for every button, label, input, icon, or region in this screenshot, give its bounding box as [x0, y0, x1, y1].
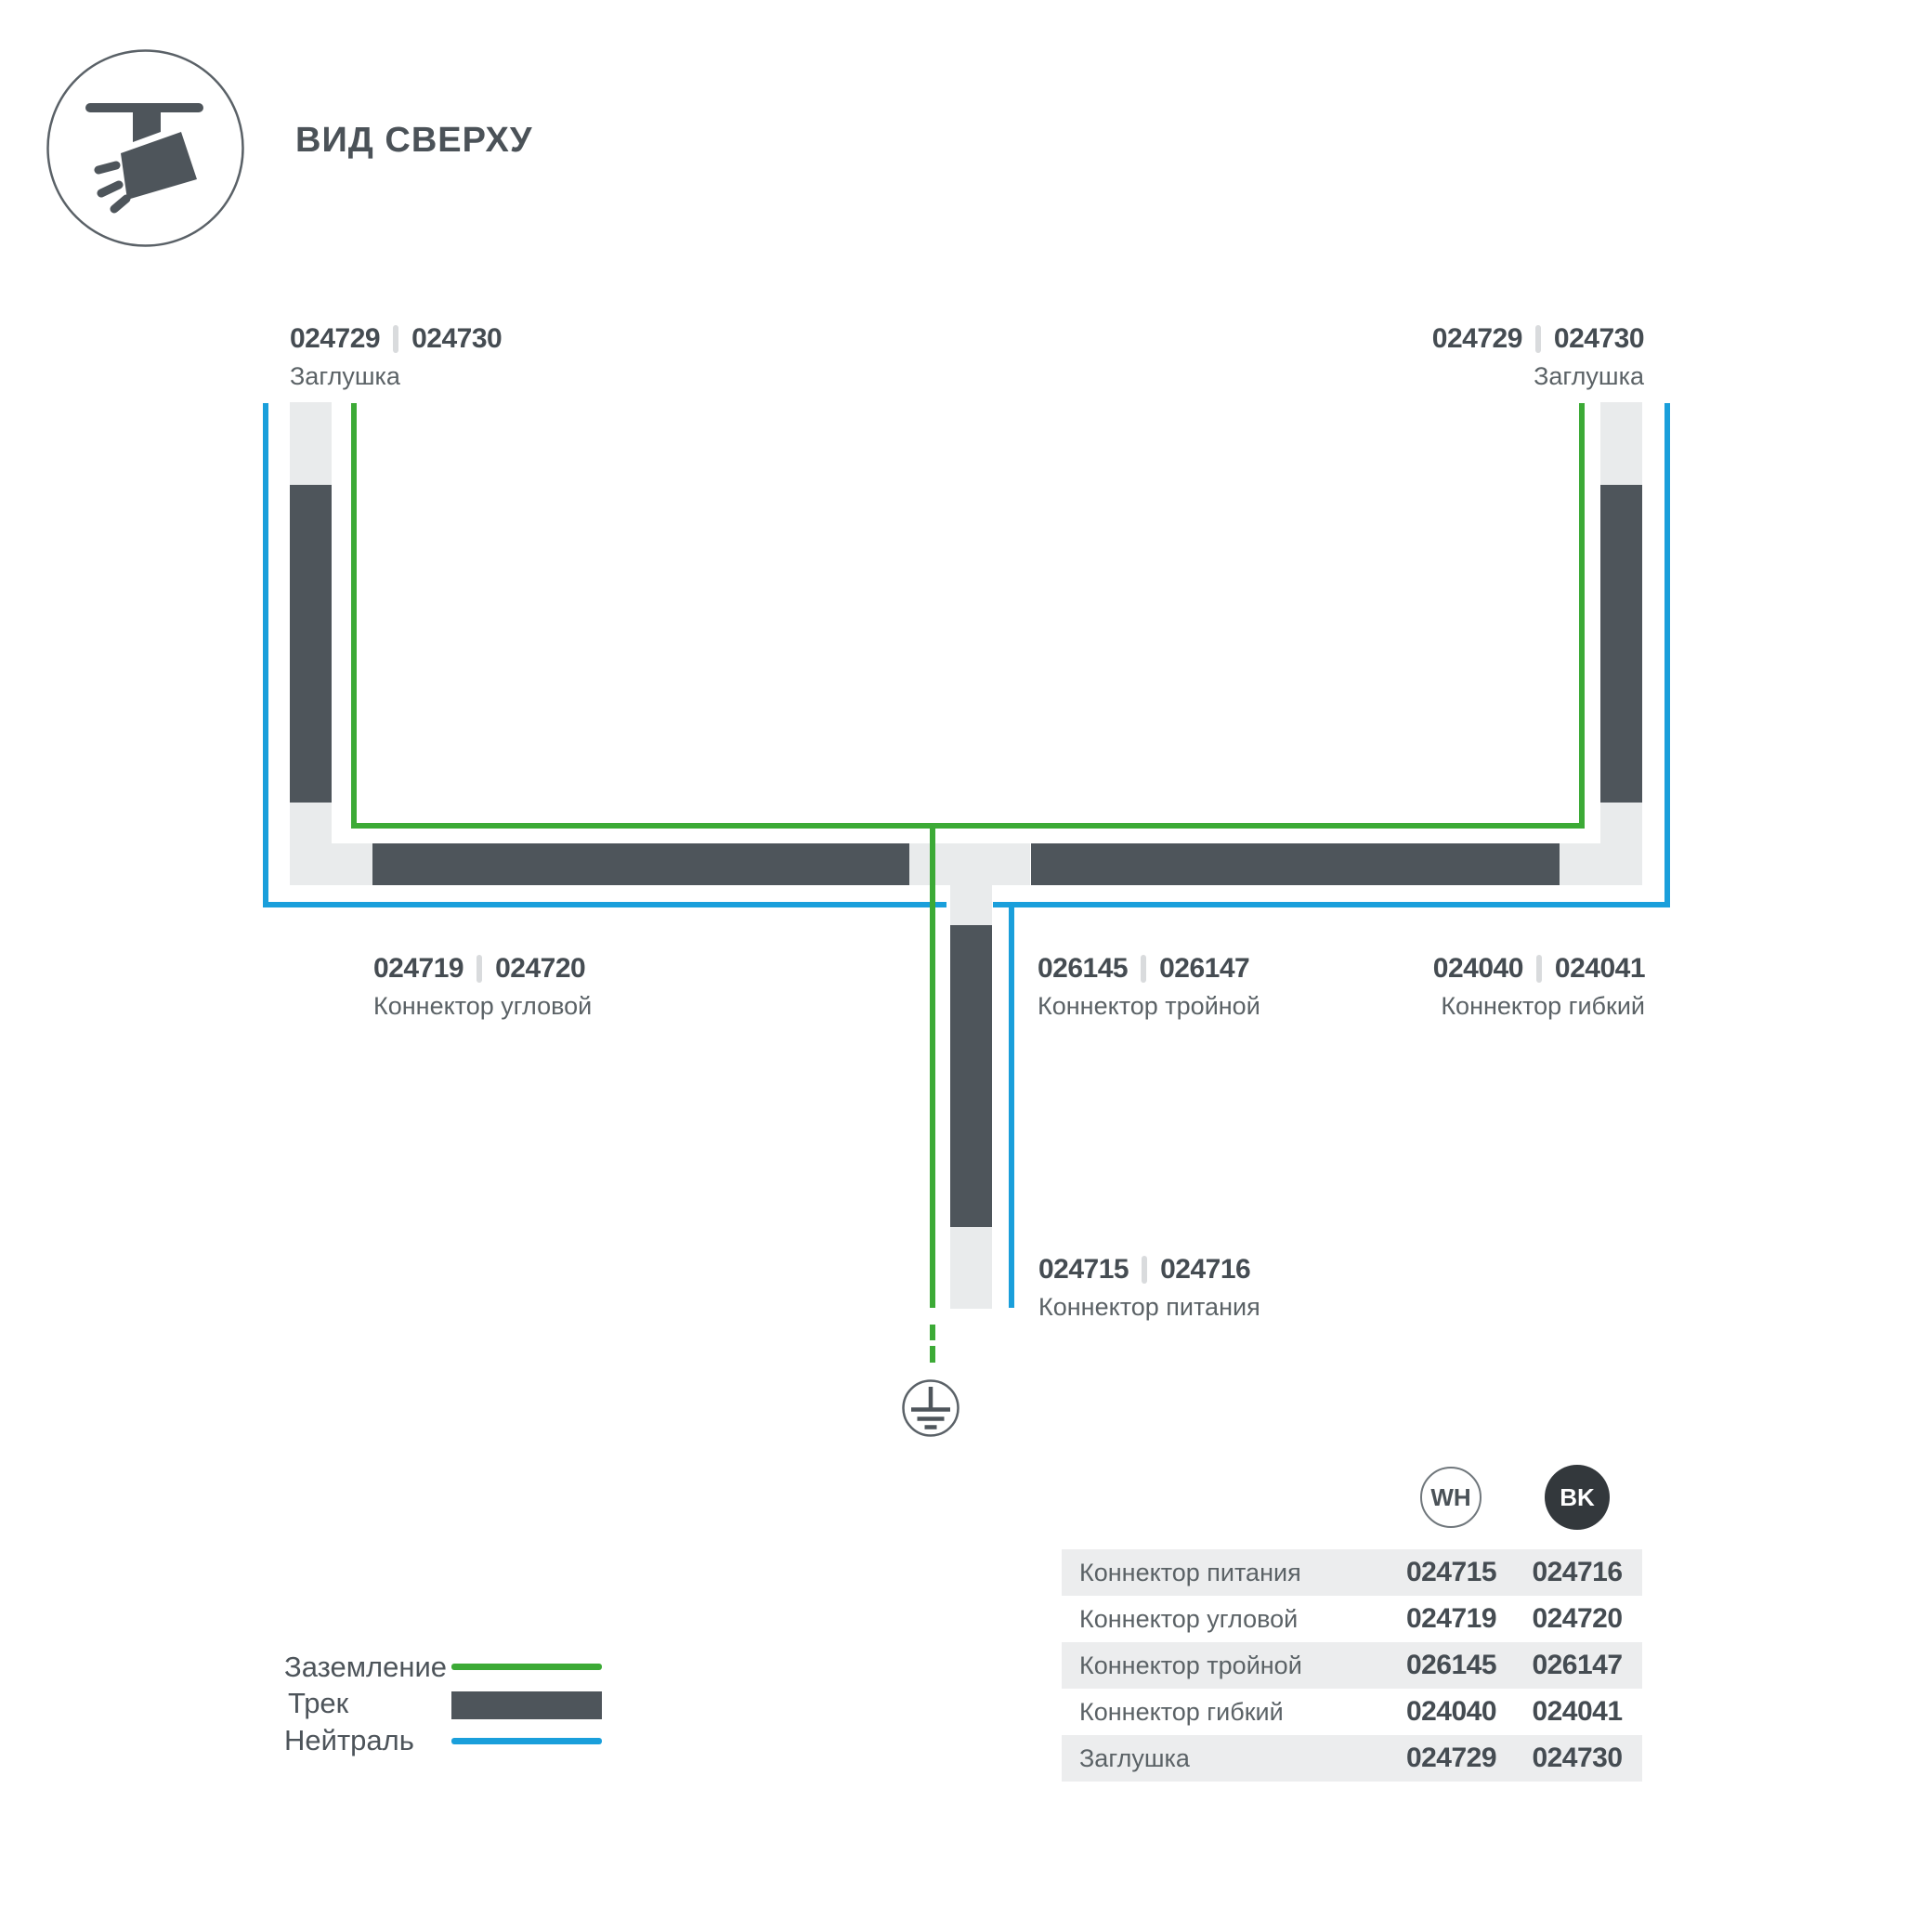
- track-spotlight-icon: [46, 48, 245, 248]
- table-row: Коннектор угловой 024719 024720: [1062, 1596, 1642, 1642]
- row-article-bk: 024041: [1512, 1696, 1642, 1728]
- label-flex-connector: 024040 024041 Коннектор гибкий: [1433, 953, 1645, 1020]
- neutral-line: [993, 902, 1670, 907]
- track-segment-stub: [950, 925, 992, 1227]
- ground-line: [351, 403, 357, 829]
- neutral-line: [1664, 403, 1670, 907]
- row-name: Заглушка: [1062, 1744, 1390, 1773]
- ground-line: [351, 823, 1585, 829]
- table-row: Заглушка 024729 024730: [1062, 1735, 1642, 1782]
- ground-line-dash: [930, 1346, 935, 1363]
- article-wh: 024729: [290, 323, 380, 355]
- article-bk: 024720: [495, 953, 585, 985]
- end-cap-left: [290, 402, 332, 485]
- power-connector-cap: [950, 1227, 992, 1309]
- label-name: Заглушка: [290, 362, 502, 390]
- divider: [1142, 1256, 1147, 1284]
- label-triple-connector: 026145 026147 Коннектор тройной: [1038, 953, 1260, 1020]
- end-cap-right: [1600, 402, 1642, 485]
- ground-line: [1579, 403, 1585, 829]
- label-power-connector: 024715 024716 Коннектор питания: [1038, 1254, 1260, 1321]
- article-bk: 024730: [1554, 323, 1644, 355]
- row-article-wh: 026145: [1390, 1650, 1512, 1681]
- label-codes: 024715 024716: [1038, 1254, 1260, 1286]
- ground-line-dash: [930, 1325, 935, 1340]
- corner-connector-left: [290, 843, 372, 885]
- neutral-line: [263, 403, 268, 907]
- table-row: Коннектор питания 024715 024716: [1062, 1549, 1642, 1596]
- legend-label-neutral: Нейтраль: [284, 1724, 414, 1757]
- legend-swatch-track-bar: [451, 1691, 602, 1719]
- label-codes: 024719 024720: [373, 953, 592, 985]
- flex-connector-right: [1600, 803, 1642, 885]
- legend-swatch-neutral-line: [451, 1738, 602, 1744]
- row-name: Коннектор питания: [1062, 1559, 1390, 1587]
- article-wh: 024040: [1433, 953, 1523, 985]
- color-badge-white: WH: [1420, 1467, 1482, 1528]
- legend-label-ground: Заземление: [284, 1651, 447, 1684]
- legend-swatch-ground-line: [451, 1664, 602, 1670]
- row-article-bk: 026147: [1512, 1650, 1642, 1681]
- track-segment-top-left: [372, 843, 909, 885]
- article-bk: 024730: [411, 323, 502, 355]
- article-bk: 024716: [1160, 1254, 1250, 1286]
- divider: [393, 325, 398, 353]
- legend-label-track: Трек: [288, 1687, 348, 1720]
- neutral-line: [263, 902, 946, 907]
- row-article-wh: 024719: [1390, 1603, 1512, 1635]
- label-codes: 026145 026147: [1038, 953, 1260, 985]
- divider: [1141, 955, 1146, 983]
- divider: [1536, 955, 1542, 983]
- track-segment-top-right: [1031, 843, 1560, 885]
- page-title: ВИД СВЕРХУ: [295, 121, 533, 161]
- row-article-bk: 024716: [1512, 1557, 1642, 1588]
- t-connector: [950, 843, 992, 925]
- article-bk: 024041: [1555, 953, 1645, 985]
- label-name: Коннектор угловой: [373, 992, 592, 1020]
- row-article-wh: 024715: [1390, 1557, 1512, 1588]
- row-name: Коннектор тройной: [1062, 1651, 1390, 1680]
- label-name: Коннектор питания: [1038, 1293, 1260, 1321]
- track-segment-right: [1600, 485, 1642, 803]
- ground-line: [930, 826, 935, 1308]
- label-codes: 024040 024041: [1433, 953, 1645, 985]
- track-segment-left: [290, 485, 332, 803]
- article-wh: 024729: [1432, 323, 1522, 355]
- earth-ground-icon: [901, 1378, 960, 1438]
- row-name: Коннектор гибкий: [1062, 1698, 1390, 1727]
- article-wh: 024719: [373, 953, 463, 985]
- table-row: Коннектор гибкий 024040 024041: [1062, 1689, 1642, 1735]
- article-wh: 026145: [1038, 953, 1128, 985]
- table-row: Коннектор тройной 026145 026147: [1062, 1642, 1642, 1689]
- neutral-line: [1009, 902, 1014, 1308]
- divider: [476, 955, 482, 983]
- label-end-cap-right: 024729 024730 Заглушка: [1432, 323, 1644, 390]
- articles-table: Коннектор питания 024715 024716 Коннекто…: [1062, 1549, 1642, 1782]
- label-codes: 024729 024730: [290, 323, 502, 355]
- page: ВИД СВЕРХУ 024729 024730: [0, 0, 1932, 1932]
- label-name: Заглушка: [1534, 362, 1644, 390]
- color-badge-black: BK: [1545, 1465, 1610, 1530]
- row-article-bk: 024730: [1512, 1743, 1642, 1774]
- label-name: Коннектор тройной: [1038, 992, 1260, 1020]
- divider: [1535, 325, 1541, 353]
- row-article-wh: 024729: [1390, 1743, 1512, 1774]
- row-article-bk: 024720: [1512, 1603, 1642, 1635]
- label-codes: 024729 024730: [1432, 323, 1644, 355]
- article-wh: 024715: [1038, 1254, 1129, 1286]
- row-article-wh: 024040: [1390, 1696, 1512, 1728]
- article-bk: 026147: [1159, 953, 1249, 985]
- row-name: Коннектор угловой: [1062, 1605, 1390, 1634]
- label-name: Коннектор гибкий: [1441, 992, 1645, 1020]
- label-corner-connector: 024719 024720 Коннектор угловой: [373, 953, 592, 1020]
- label-end-cap-left: 024729 024730 Заглушка: [290, 323, 502, 390]
